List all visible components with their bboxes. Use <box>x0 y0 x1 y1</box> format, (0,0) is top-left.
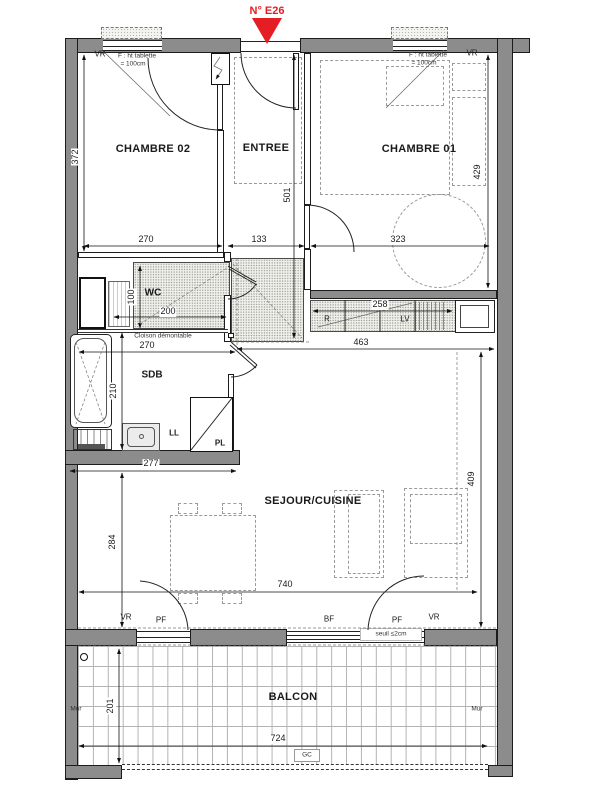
unit-marker-label: N° E26 <box>250 5 285 17</box>
washbasin-drain-icon <box>139 434 144 439</box>
dim-sejour-width: 740 <box>276 580 293 590</box>
unit-marker-icon <box>252 18 282 44</box>
dim-wc-depth: 100 <box>127 288 137 305</box>
room-label-balcon: BALCON <box>269 691 318 703</box>
label-vr-bottom-right: VR <box>428 614 439 623</box>
door-leaf-sdb <box>231 342 257 365</box>
window-note-right-1: F : ht tablette <box>409 51 447 58</box>
dim-counter: 258 <box>371 300 388 310</box>
dim-chambre02-width: 270 <box>137 235 154 245</box>
window-top-right <box>393 40 447 51</box>
dim-chambre02-depth: 372 <box>71 148 81 165</box>
wall-sejour-bottom-b <box>190 629 287 646</box>
room-label-entree: ENTREE <box>243 142 289 154</box>
room-label-chambre01: CHAMBRE 01 <box>382 143 457 155</box>
partition-entree-ch01 <box>304 53 311 205</box>
partition-ch02-entree <box>217 130 224 258</box>
door-leaf-chambre01 <box>304 205 310 249</box>
balcony-drain-icon <box>80 653 88 661</box>
dim-entree-depth: 501 <box>283 186 293 203</box>
bathtub-inner <box>74 338 107 423</box>
label-dishwasher: LV <box>400 316 409 325</box>
label-mur-left: Mur <box>70 705 81 712</box>
wall-chambre01-bottom <box>310 290 497 299</box>
door-arc-chambre02 <box>148 58 220 130</box>
window-ledge-left <box>101 27 162 39</box>
label-pf-bottom-right: PF <box>392 617 402 626</box>
chair-2 <box>222 503 242 514</box>
window-ledge-right <box>391 27 448 39</box>
dim-alcove-width: 277 <box>142 459 159 469</box>
wall-sejour-bottom-a <box>65 629 137 646</box>
partition-corridor-a <box>224 252 231 262</box>
window-pf-left <box>137 631 190 643</box>
corridor-floor-hatch <box>231 258 304 342</box>
wall-right <box>497 38 513 775</box>
dining-table <box>170 515 256 591</box>
door-arc-sdb <box>231 365 257 377</box>
window-note-left-2: = 100cm <box>120 60 145 67</box>
room-label-chambre02: CHAMBRE 02 <box>116 143 191 155</box>
label-bf-bottom: BF <box>324 616 334 625</box>
label-mur-right: Mur <box>471 705 482 712</box>
balcony-tiles <box>78 646 497 766</box>
label-threshold-note: seuil ≤2cm <box>375 630 406 637</box>
partition-sdb-a <box>228 333 234 338</box>
kitchen-sink-bowl <box>460 305 489 328</box>
wall-sejour-bottom-c <box>424 629 497 646</box>
dim-sejour-depth: 409 <box>467 470 477 487</box>
partition-entree-ch01-low <box>304 249 311 290</box>
dim-sdb-width: 270 <box>138 341 155 351</box>
chair-1 <box>178 503 198 514</box>
radiator-bar <box>78 444 105 449</box>
dim-entree-width: 133 <box>250 235 267 245</box>
electrical-panel <box>211 53 230 85</box>
pillow-chambre01 <box>386 66 444 106</box>
dim-balcon-depth: 201 <box>106 697 116 714</box>
label-pf-bottom-left: PF <box>156 617 166 626</box>
label-fridge: R <box>324 316 330 325</box>
window-bay-bf <box>287 631 368 643</box>
dim-kitchen-zone: 463 <box>352 338 369 348</box>
label-vr-top-right: VR <box>466 50 477 59</box>
balcony-edge-strip <box>122 764 488 770</box>
dim-alcove-depth: 284 <box>108 533 118 550</box>
dim-chambre01-depth: 429 <box>473 163 483 180</box>
chair-3 <box>178 593 198 604</box>
sofa-2-seat <box>410 494 462 544</box>
floor-plan: N° E26 CHAMBRE 02 ENTREE CHAMBRE 01 WC S… <box>0 0 612 800</box>
closet-pl <box>190 397 233 452</box>
dishwasher-stripes <box>415 302 445 330</box>
nightstand-top <box>452 63 486 91</box>
partition-ch02-bottom <box>78 252 224 258</box>
label-washing-machine: LL <box>169 430 179 439</box>
room-label-sdb: SDB <box>141 370 162 381</box>
window-note-right-2: = 100cm <box>411 59 436 66</box>
chair-4 <box>222 593 242 604</box>
label-vr-bottom-left: VR <box>120 614 131 623</box>
window-note-left-1: F : ht tablette <box>118 52 156 59</box>
dim-balcon-width: 724 <box>269 734 286 744</box>
duct-box <box>79 277 106 329</box>
room-label-sejour: SEJOUR/CUISINE <box>264 495 361 507</box>
label-partition-note: Cloison démontable <box>134 332 191 339</box>
wall-balcony-stub-left <box>65 765 122 779</box>
entree-closet-zone <box>234 57 302 184</box>
dim-chambre01-width: 323 <box>389 235 406 245</box>
door-leaf-sdb-2 <box>230 345 256 368</box>
door-arc-chambre01 <box>307 205 354 252</box>
dim-wc-width: 200 <box>159 307 176 317</box>
label-gc: GC <box>302 751 312 758</box>
window-top-left <box>103 40 162 51</box>
dim-sdb-depth: 210 <box>109 382 119 399</box>
label-vr-top-left: VR <box>94 51 105 60</box>
label-closet-pl: PL <box>215 440 225 449</box>
wall-balcony-stub-right <box>488 765 513 777</box>
room-label-wc: WC <box>145 288 162 299</box>
